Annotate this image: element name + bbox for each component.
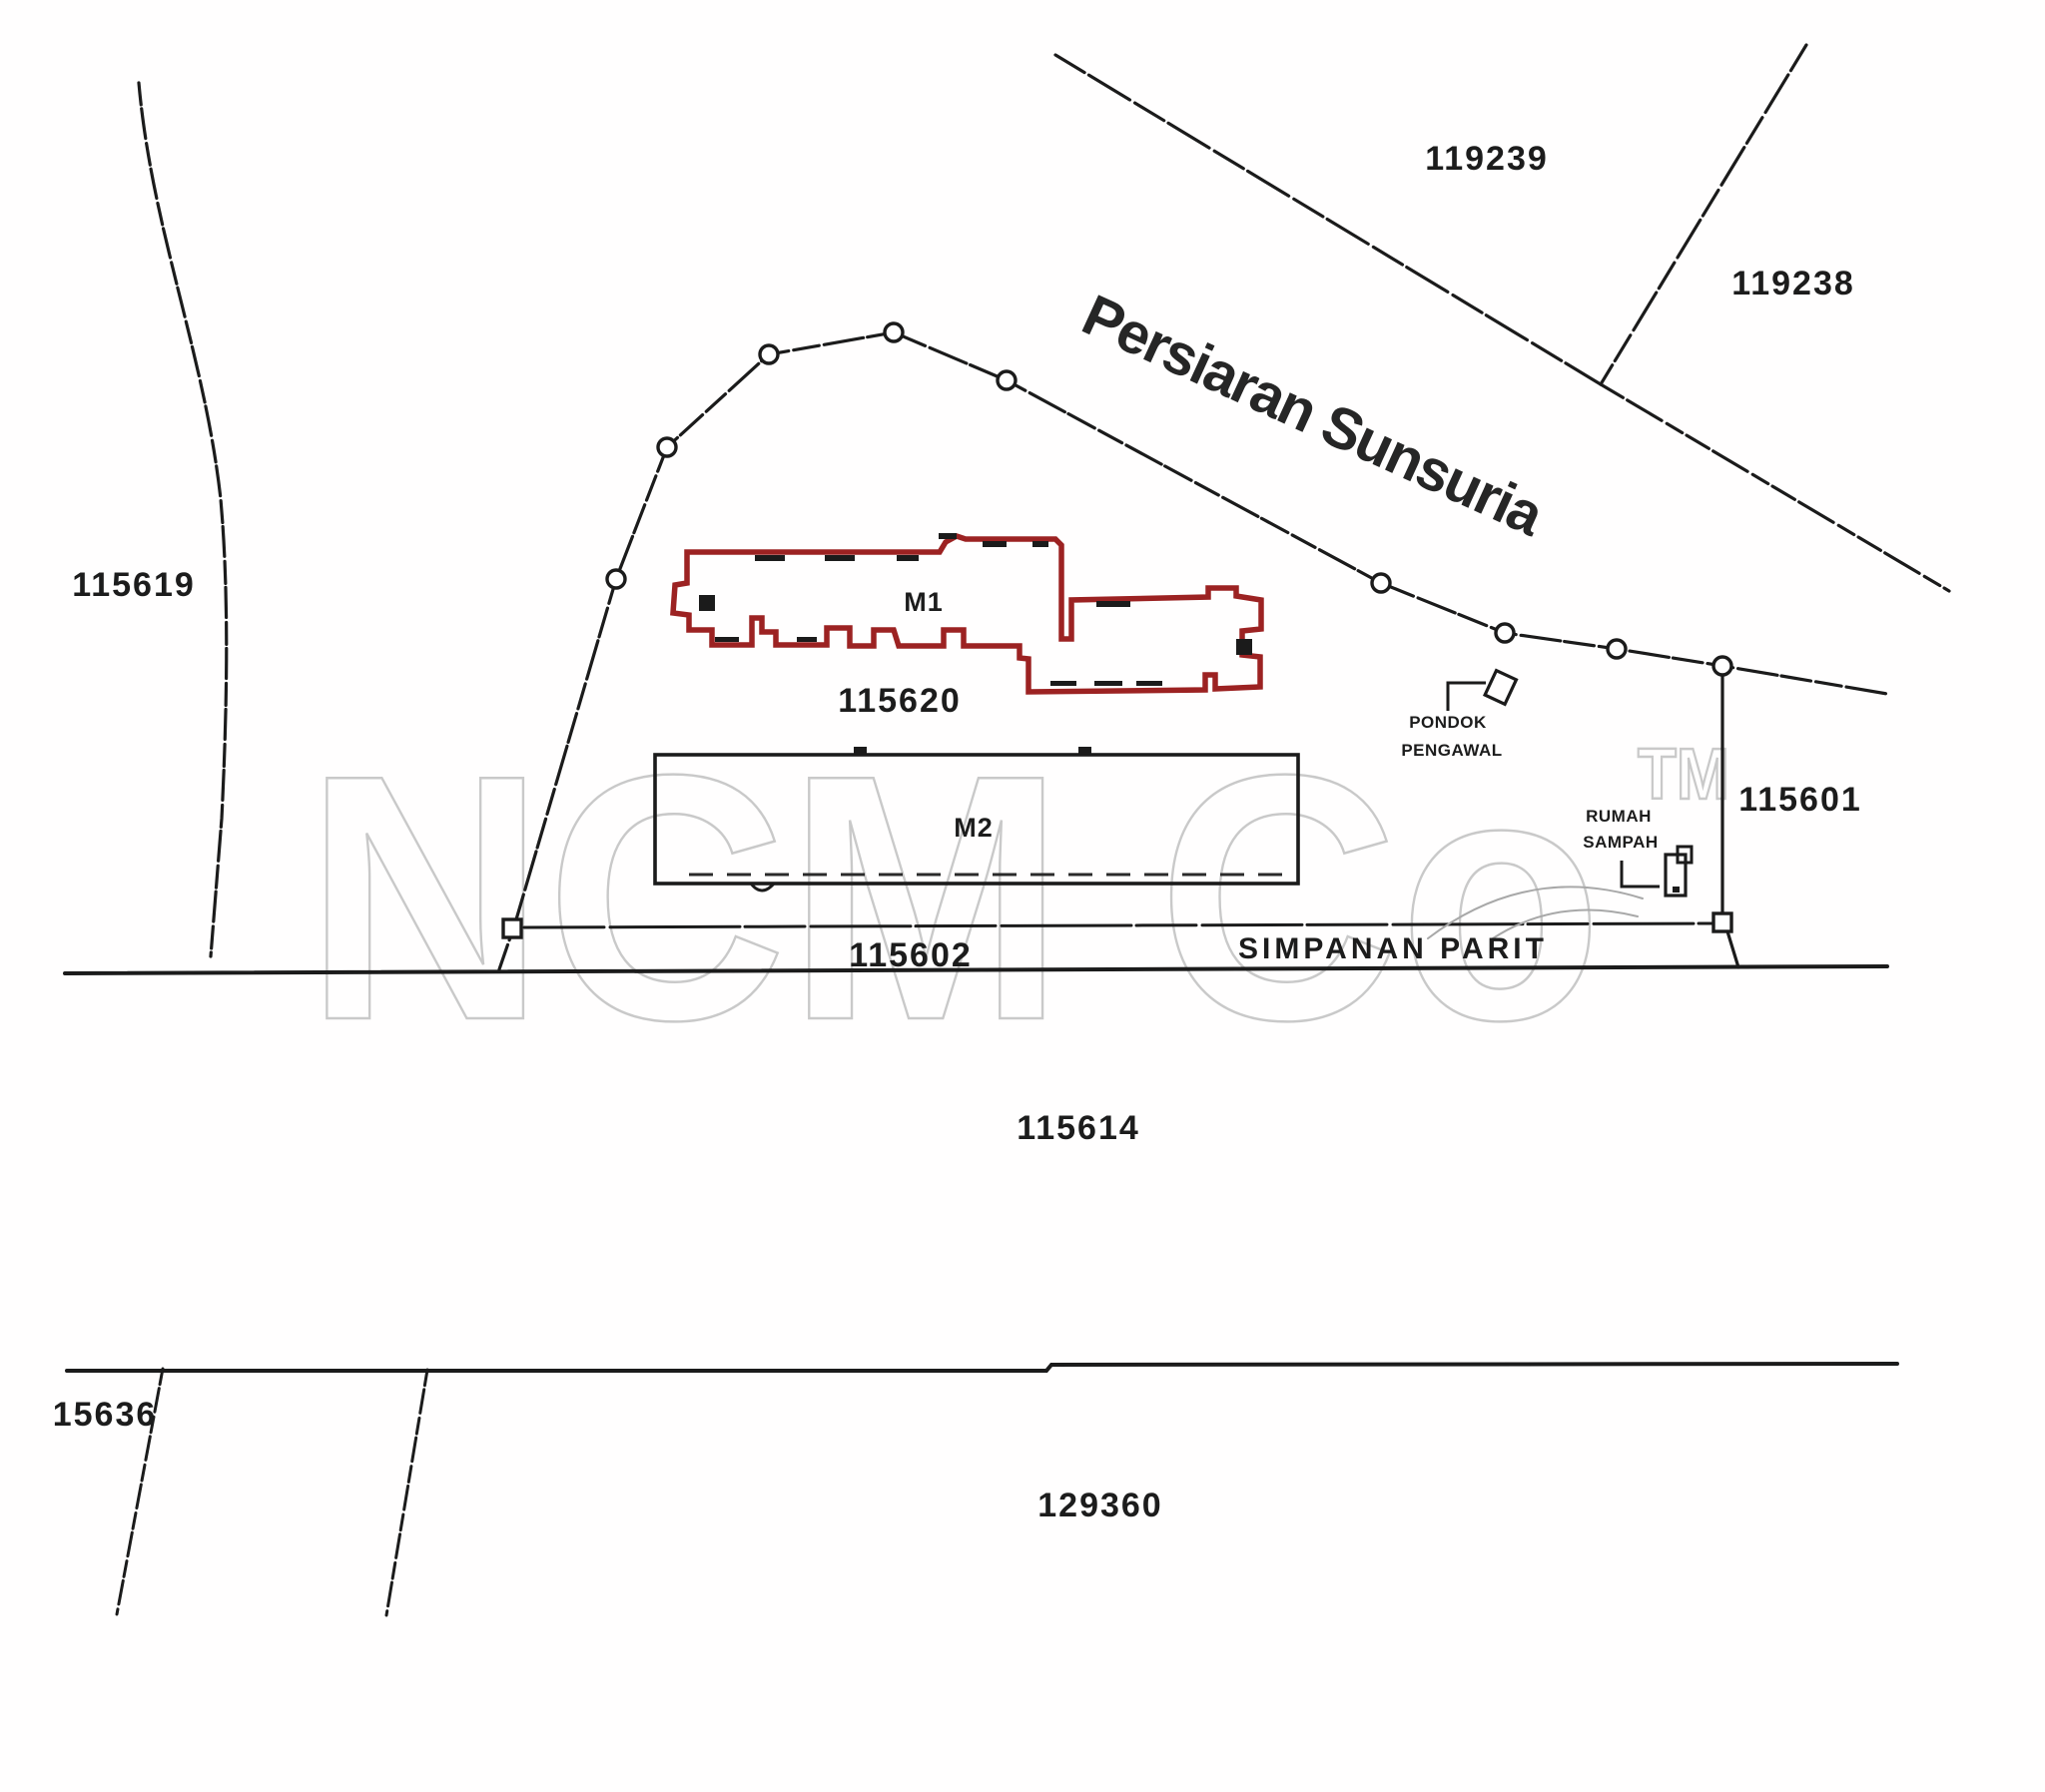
survey-marker-circle [998,371,1016,389]
m1-tick [1050,681,1076,686]
site-plan-map: NCM Co TM [0,0,2045,1792]
m1-tick [755,555,785,561]
m1-tick [1096,601,1130,607]
pondok-label-line2: PENGAWAL [1401,741,1502,760]
lot-label-115614: 115614 [1017,1109,1140,1147]
building-m2-top-tick [854,747,867,755]
road-edge-southeast [1601,384,1949,591]
boundary-119238 [1601,45,1806,384]
m1-corner-mark [1236,639,1252,655]
rumah-sampah-leader-line [1622,861,1660,887]
survey-marker-circle [760,345,778,363]
m1-corner-mark [699,595,715,611]
survey-marker-square [1713,913,1731,931]
survey-marker-circle [1372,574,1390,592]
lot-label-129360: 129360 [1037,1487,1162,1524]
survey-marker-circle [1713,657,1731,675]
simpanan-parit-label: SIMPANAN PARIT [1238,932,1548,965]
m1-tick [715,637,739,642]
lot-label-119238: 119238 [1731,265,1855,302]
m1-tick [797,637,817,642]
m1-tick [939,533,957,539]
lot-label-115619: 115619 [72,566,196,604]
m1-tick [983,541,1007,547]
survey-marker-circle [607,570,625,588]
rumah-sampah-label-line1: RUMAH [1586,807,1652,826]
watermark-tm-mark: TM [1638,735,1729,815]
m1-tick [897,555,919,561]
watermark-group: NCM Co TM [305,703,1729,1093]
building-m2-label: M2 [954,813,994,843]
scanned-site-plan-page: NCM Co TM [0,0,2045,1792]
lot-label-115620: 115620 [838,682,962,720]
survey-marker-circle [658,438,676,456]
m1-tick [1032,541,1048,547]
guard-house-icon [1485,671,1516,705]
survey-marker-square [503,919,521,937]
boundary-15636-west [386,1370,427,1615]
m1-tick [825,555,855,561]
boundary-115601-foot [1727,931,1738,967]
road-name-label: Persiaran Sunsuria [1073,283,1555,549]
m1-tick [1136,681,1162,686]
pondok-label-line1: PONDOK [1409,713,1487,732]
boundary-curve-115619 [139,83,227,956]
rubbish-house-icon-dot [1673,887,1680,893]
m1-tick [1094,681,1122,686]
lot-label-119239: 119239 [1425,140,1549,178]
watermark-text: NCM Co [305,703,1603,1093]
lot-label-115601: 115601 [1738,781,1862,819]
rumah-sampah-label-line2: SAMPAH [1583,833,1658,852]
building-m1-label: M1 [904,587,944,617]
building-m1-ticks [699,533,1252,686]
lot-label-15636: 15636 [53,1396,158,1434]
survey-marker-circle [885,323,903,341]
survey-marker-circle [1608,640,1626,658]
lot-label-115602: 115602 [849,936,973,974]
survey-marker-circle [1496,624,1514,642]
building-m2-top-tick [1078,747,1091,755]
building-m1-group: M1 [673,533,1261,692]
bottom-boundary-line [67,1364,1897,1371]
